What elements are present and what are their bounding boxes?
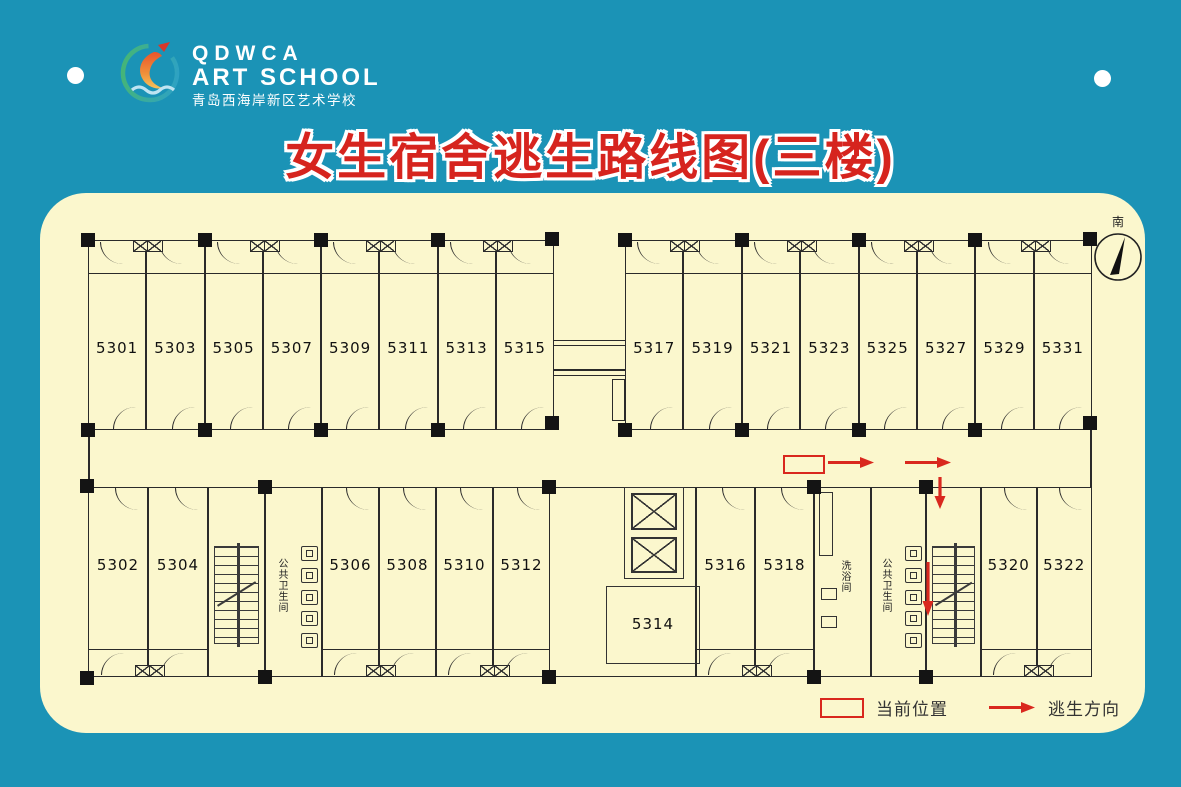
dorm-room: 5305: [205, 240, 263, 430]
toilet-label: 公共卫生间: [878, 558, 893, 613]
door-arc-icon: [230, 407, 253, 429]
corridor-wall: [1090, 430, 1092, 487]
room-number: 5317: [626, 339, 682, 357]
door-arc-icon: [1001, 407, 1024, 429]
door-arc-icon: [448, 653, 471, 675]
door-arc-icon: [754, 242, 777, 264]
toilet-stalls-icon: [905, 546, 922, 648]
room-number: 5316: [697, 556, 754, 574]
fixture-icon: [821, 616, 837, 628]
door-arc-icon: [884, 407, 907, 429]
dorm-room: 5301: [88, 240, 146, 430]
room-number: 5318: [756, 556, 813, 574]
elevator-icon: [631, 537, 677, 574]
door-arc-icon: [334, 653, 357, 675]
dorm-room: 5314: [606, 586, 700, 664]
room-number: 5325: [860, 339, 916, 357]
window-icon: [742, 665, 772, 677]
escape-arrow-icon: [827, 456, 875, 474]
compass: 南: [1088, 213, 1148, 288]
window-icon: [1021, 240, 1051, 252]
door-arc-icon: [767, 407, 790, 429]
door-arc-icon: [1059, 488, 1082, 510]
escape-direction-label: 逃生方向: [1048, 695, 1120, 720]
dorm-room: 5309: [321, 240, 379, 430]
door-arc-icon: [172, 407, 195, 429]
current-position-swatch: [820, 698, 864, 718]
door-arc-icon: [708, 653, 731, 675]
mounting-hole: [1094, 70, 1111, 87]
dorm-room: 5325: [859, 240, 917, 430]
door-arc-icon: [403, 488, 426, 510]
shower-room: 洗浴间: [814, 487, 871, 677]
logo-school-name-cn: 青岛西海岸新区艺术学校: [192, 94, 381, 108]
dorm-room: 5308: [379, 487, 436, 677]
dorm-room: 5315: [496, 240, 554, 430]
column: [545, 232, 559, 246]
dorm-room: 5329: [975, 240, 1033, 430]
column: [545, 416, 559, 430]
dorm-room: 5323: [800, 240, 858, 430]
column: [1083, 416, 1097, 430]
room-number: 5304: [149, 556, 207, 574]
stairwell-left: [208, 487, 265, 677]
compass-south-label: 南: [1088, 213, 1148, 230]
rooms-bottom-mid: 5306 5308 5310 5312: [322, 487, 550, 677]
escape-route-poster: { "header": { "logo_en1": "QDWCA", "logo…: [0, 0, 1181, 787]
dorm-room: 5310: [436, 487, 493, 677]
door-arc-icon: [450, 242, 473, 264]
bridge-door: [612, 379, 625, 421]
mounting-hole: [67, 67, 84, 84]
door-arc-icon: [871, 242, 894, 264]
door-arc-icon: [346, 407, 369, 429]
public-toilet-left: 公共卫生间: [265, 487, 322, 677]
door-arc-icon: [463, 407, 486, 429]
dorm-room: 5322: [1037, 487, 1093, 677]
dorm-room: 5318: [755, 487, 814, 677]
fixture-icon: [821, 588, 837, 600]
stairwell-right: [926, 487, 981, 677]
escape-arrow-icon: [904, 456, 952, 474]
door-arc-icon: [942, 407, 965, 429]
stairs-icon: [214, 546, 259, 644]
door-arc-icon: [993, 653, 1016, 675]
dorm-room: 5327: [917, 240, 975, 430]
rooms-bottom-left: 5302 5304: [88, 487, 208, 677]
rooms-bottom-mid2: 5316 5318: [696, 487, 814, 677]
door-arc-icon: [175, 488, 198, 510]
room-number: 5310: [437, 556, 492, 574]
room-number: 5312: [494, 556, 549, 574]
escape-arrow-icon: [988, 701, 1036, 714]
bridge-walkway: [554, 369, 625, 376]
room-number: 5329: [976, 339, 1032, 357]
rooms-bottom-right: 5320 5322: [981, 487, 1092, 677]
room-number: 5301: [89, 339, 145, 357]
door-arc-icon: [825, 407, 848, 429]
door-arc-icon: [346, 488, 369, 510]
current-position-marker: [783, 455, 825, 474]
room-number: 5313: [439, 339, 495, 357]
door-arc-icon: [100, 242, 123, 264]
room-number: 5323: [801, 339, 857, 357]
room-number: 5321: [743, 339, 799, 357]
room-number: 5307: [264, 339, 320, 357]
door-arc-icon: [101, 653, 124, 675]
dorm-room: 5320: [981, 487, 1037, 677]
door-arc-icon: [113, 407, 136, 429]
room-number: 5303: [147, 339, 203, 357]
room-number: 5320: [982, 556, 1036, 574]
dorm-room: 5312: [493, 487, 550, 677]
dorm-room: 5317: [625, 240, 683, 430]
elevator-hall: 5314: [550, 487, 696, 677]
window-icon: [135, 665, 165, 677]
door-arc-icon: [517, 488, 540, 510]
door-arc-icon: [637, 242, 660, 264]
current-position-label: 当前位置: [876, 695, 948, 720]
dorm-room: 5307: [263, 240, 321, 430]
public-toilet-right: 公共卫生间: [871, 487, 926, 677]
logo-acronym: QDWCA: [192, 43, 381, 64]
dorm-room: 5313: [438, 240, 496, 430]
room-number: 5306: [323, 556, 378, 574]
door-arc-icon: [333, 242, 356, 264]
room-block-top-left: 5301 5303 5305 5307 5309 5311: [88, 240, 554, 430]
room-number: 5308: [380, 556, 435, 574]
door-arc-icon: [288, 407, 311, 429]
compass-icon: [1092, 270, 1144, 287]
door-arc-icon: [988, 242, 1011, 264]
room-number: 5314: [607, 615, 699, 633]
dorm-room: 5302: [88, 487, 148, 677]
elevator-shafts: [624, 487, 684, 579]
dorm-room: 5311: [379, 240, 437, 430]
room-number: 5305: [206, 339, 262, 357]
room-number: 5322: [1038, 556, 1092, 574]
floor-plan-panel: 南 5301 5303 5305 5307: [40, 193, 1145, 733]
window-icon: [670, 240, 700, 252]
window-icon: [904, 240, 934, 252]
dorm-room: 5316: [696, 487, 755, 677]
room-number: 5327: [918, 339, 974, 357]
window-icon: [1024, 665, 1054, 677]
door-arc-icon: [405, 407, 428, 429]
room-number: 5311: [380, 339, 436, 357]
bridge-walkway: [554, 340, 625, 346]
room-number: 5302: [89, 556, 147, 574]
window-icon: [133, 240, 163, 252]
room-number: 5315: [497, 339, 553, 357]
page-title: 女生宿舍逃生路线图(三楼): [0, 118, 1181, 189]
toilet-stalls-icon: [301, 546, 318, 648]
school-logo-icon: [118, 40, 182, 111]
elevator-icon: [631, 493, 677, 530]
window-icon: [483, 240, 513, 252]
toilet-label: 公共卫生间: [274, 558, 289, 613]
legend: 当前位置 逃生方向: [820, 695, 1120, 720]
cabinet-icon: [819, 492, 833, 556]
school-logo: QDWCA ART SCHOOL 青岛西海岸新区艺术学校: [118, 40, 381, 111]
door-arc-icon: [217, 242, 240, 264]
door-arc-icon: [1059, 407, 1082, 429]
door-arc-icon: [460, 488, 483, 510]
window-icon: [250, 240, 280, 252]
dorm-room: 5306: [322, 487, 379, 677]
window-icon: [366, 240, 396, 252]
window-icon: [366, 665, 396, 677]
door-arc-icon: [722, 488, 745, 510]
room-block-bottom: 5302 5304 公共卫生间 5306: [88, 487, 1092, 677]
dorm-room: 5331: [1034, 240, 1092, 430]
dorm-room: 5321: [742, 240, 800, 430]
logo-school-name-en: ART SCHOOL: [192, 66, 381, 90]
door-arc-icon: [1004, 488, 1027, 510]
door-arc-icon: [781, 488, 804, 510]
dorm-room: 5303: [146, 240, 204, 430]
dorm-room: 5304: [148, 487, 208, 677]
stairs-icon: [932, 546, 975, 644]
room-number: 5319: [684, 339, 740, 357]
room-number: 5309: [322, 339, 378, 357]
door-arc-icon: [521, 407, 544, 429]
room-number: 5331: [1035, 339, 1091, 357]
room-block-top-right: 5317 5319 5321 5323 5325 5327: [625, 240, 1092, 430]
dorm-room: 5319: [683, 240, 741, 430]
door-arc-icon: [115, 488, 138, 510]
door-arc-icon: [650, 407, 673, 429]
column: [1083, 232, 1097, 246]
shower-label: 洗浴间: [837, 560, 852, 593]
window-icon: [787, 240, 817, 252]
door-arc-icon: [709, 407, 732, 429]
window-icon: [480, 665, 510, 677]
